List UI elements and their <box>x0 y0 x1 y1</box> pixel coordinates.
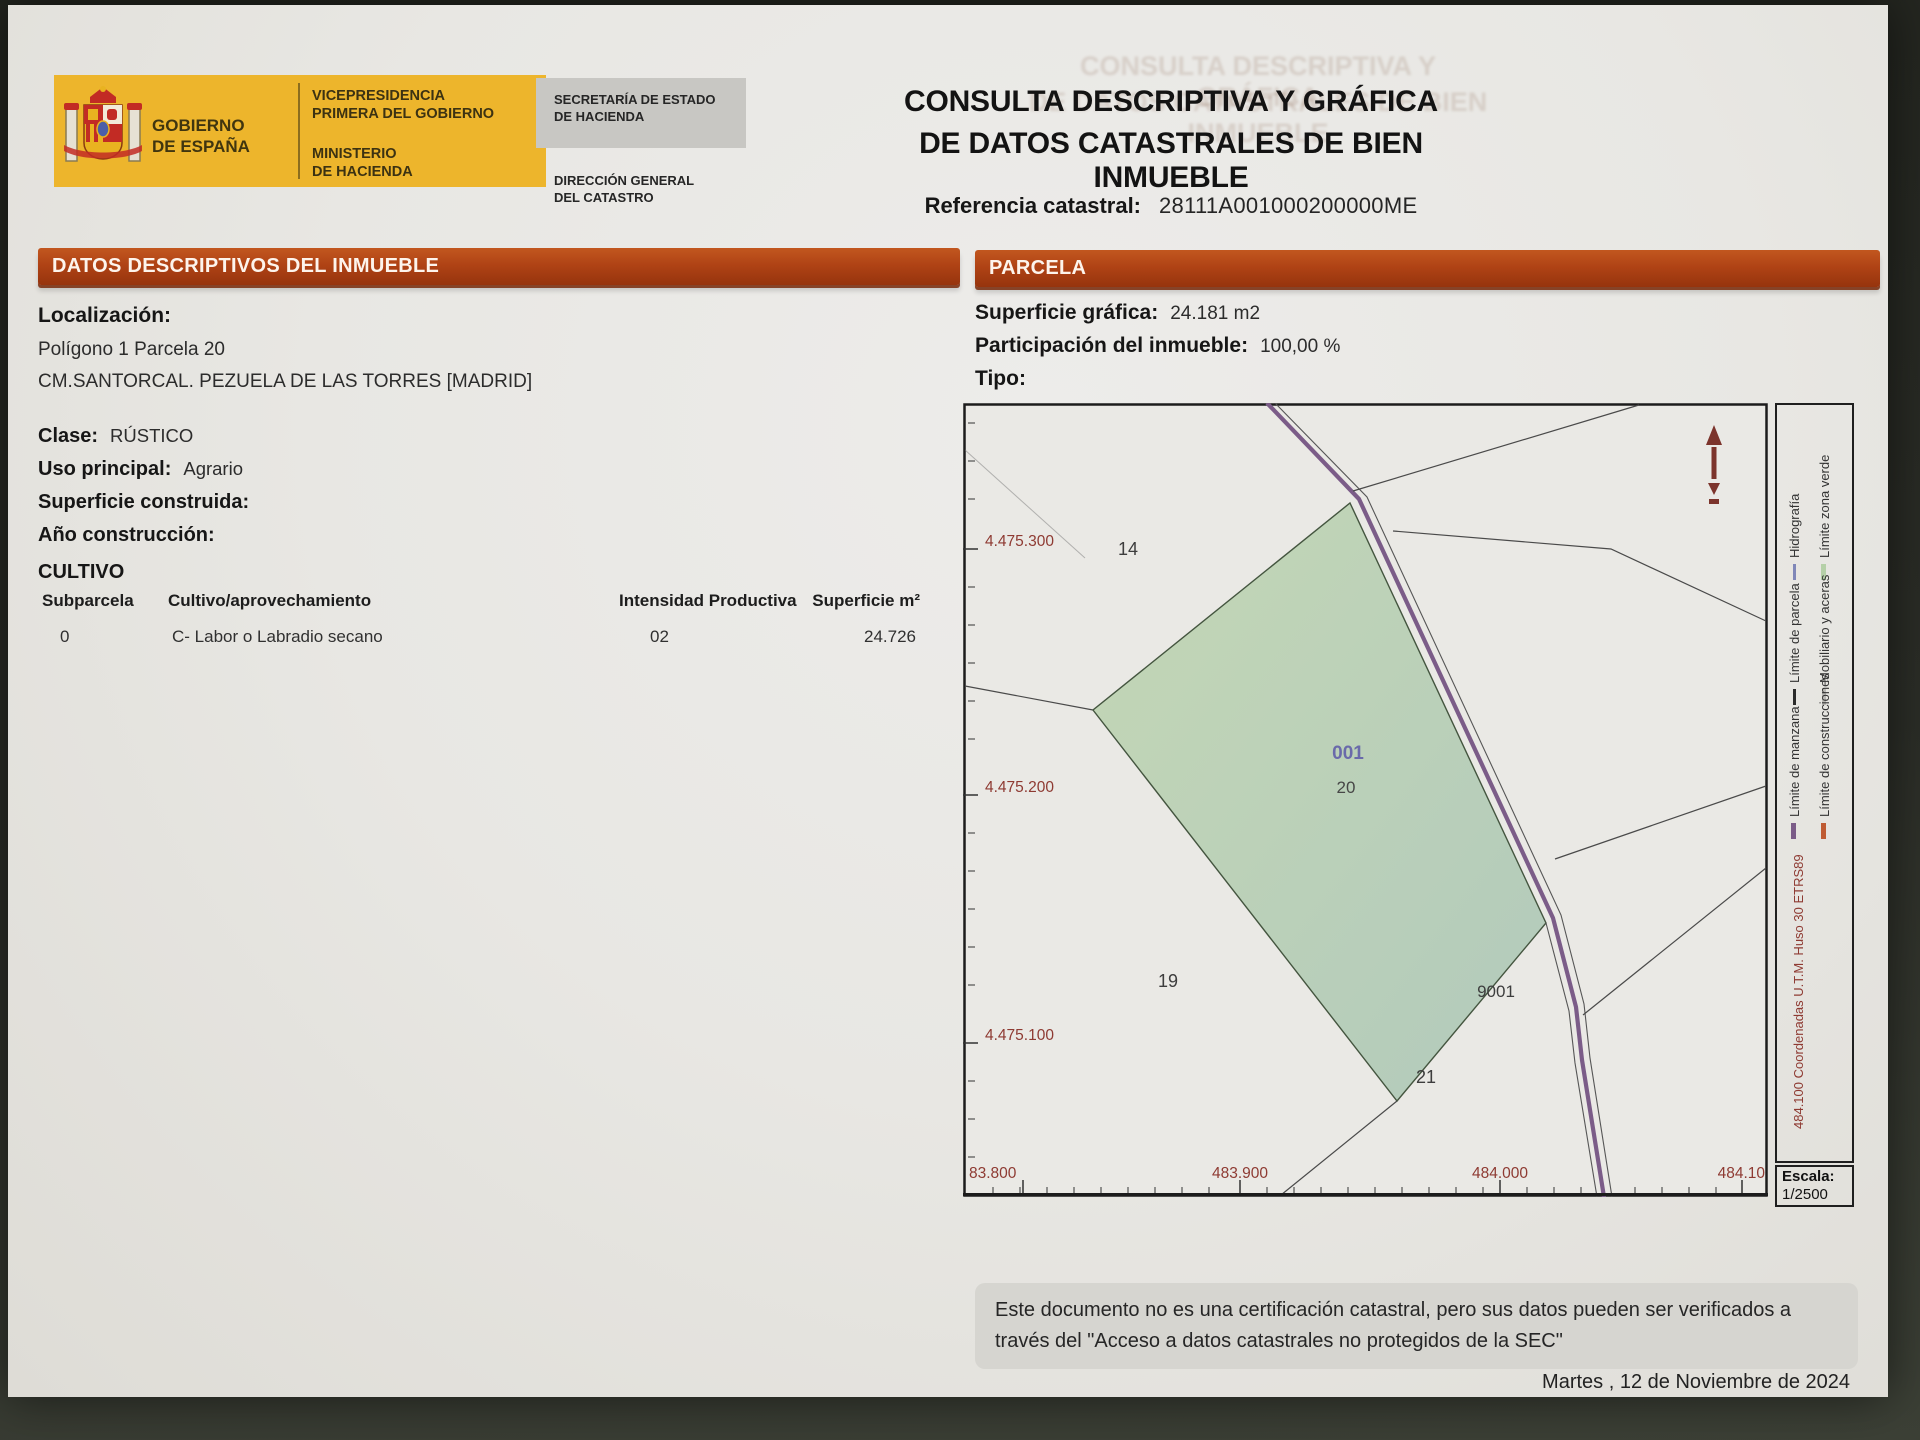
legend-item-limite-construcciones: Límite de construcciones <box>1817 673 1832 839</box>
limite-construcciones-swatch-icon <box>1821 823 1826 839</box>
referencia-catastral-value: 28111A001000200000ME <box>1159 193 1417 219</box>
participacion-row: Participación del inmueble: 100,00 % <box>975 334 1340 358</box>
participacion-value: 100,00 % <box>1260 336 1340 358</box>
legend-coordinate-note: 484.100 Coordenadas U.T.M. Huso 30 ETRS8… <box>1791 854 1806 1129</box>
clase-value: RÚSTICO <box>110 425 193 447</box>
uso-principal-value: Agrario <box>183 458 243 480</box>
legend-item-zona-verde: Límite zona verde <box>1817 455 1832 580</box>
superficie-grafica-value: 24.181 m2 <box>1170 303 1260 325</box>
document-title-line2: DE DATOS CATASTRALES DE BIEN INMUEBLE <box>866 127 1476 195</box>
map-legend: Hidrografía Límite zona verde Límite de … <box>1775 403 1854 1163</box>
secretaria-de-estado-label: SECRETARÍA DE ESTADO DE HACIENDA <box>536 78 746 148</box>
legend-item-limite-parcela: Límite de parcela <box>1787 583 1802 705</box>
localizacion-line2: CM.SANTORCAL. PEZUELA DE LAS TORRES [MAD… <box>38 371 532 393</box>
escala-value: 1/2500 <box>1782 1186 1847 1204</box>
subparcela-001-label: 001 <box>1332 743 1364 764</box>
cultivo-table: Subparcela Cultivo/aprovechamiento Inten… <box>38 591 928 671</box>
superficie-construida-label: Superficie construida: <box>38 491 249 514</box>
x-label-483900: 483.900 <box>1212 1165 1268 1182</box>
document-title-line1: CONSULTA DESCRIPTIVA Y GRÁFICA <box>866 85 1476 119</box>
scale-box: Escala: 1/2500 <box>1775 1165 1854 1207</box>
x-label-483800: 83.800 <box>969 1165 1017 1182</box>
y-label-4475300: 4.475.300 <box>985 533 1054 550</box>
gobierno-de-espana-label: GOBIERNO DE ESPAÑA <box>152 115 250 157</box>
localizacion-label: Localización: <box>38 304 171 328</box>
participacion-label: Participación del inmueble: <box>975 334 1248 358</box>
section-header-parcela: PARCELA <box>975 250 1880 287</box>
parcel-20-label: 20 <box>1337 778 1356 797</box>
cell-superficie: 24.726 <box>864 627 916 647</box>
ministerio-label: MINISTERIO DE HACIENDA <box>312 145 413 181</box>
document-page: GOBIERNO DE ESPAÑA VICEPRESIDENCIA PRIME… <box>8 5 1888 1397</box>
escala-label: Escala: <box>1782 1168 1847 1186</box>
cell-intensidad: 02 <box>650 627 669 647</box>
cell-subparcela: 0 <box>60 627 69 647</box>
superficie-grafica-row: Superficie gráfica: 24.181 m2 <box>975 301 1260 325</box>
clase-row: Clase: RÚSTICO <box>38 425 193 448</box>
col-header-intensidad: Intensidad Productiva <box>619 591 797 611</box>
logo-divider <box>298 83 300 179</box>
y-label-4475100: 4.475.100 <box>985 1027 1054 1044</box>
cadastral-reference-row: Referencia catastral: 28111A001000200000… <box>866 193 1476 219</box>
superficie-grafica-label: Superficie gráfica: <box>975 301 1158 325</box>
legend-item-limite-manzana: Límite de manzana <box>1787 706 1802 839</box>
limite-parcela-swatch-icon <box>1793 689 1796 705</box>
vicepresidencia-label: VICEPRESIDENCIA PRIMERA DEL GOBIERNO <box>312 87 494 123</box>
document-date: Martes , 12 de Noviembre de 2024 <box>1542 1371 1850 1394</box>
cell-cultivo: C- Labor o Labradio secano <box>172 627 383 647</box>
direccion-general-label: DIRECCIÓN GENERAL DEL CATASTRO <box>536 172 746 216</box>
uso-principal-label: Uso principal: <box>38 458 171 481</box>
col-header-cultivo: Cultivo/aprovechamiento <box>168 591 371 611</box>
referencia-catastral-label: Referencia catastral: <box>925 193 1141 219</box>
parcel-14-label: 14 <box>1118 539 1138 559</box>
parcel-9001-label: 9001 <box>1477 982 1515 1001</box>
uso-principal-row: Uso principal: Agrario <box>38 458 243 481</box>
section-header-datos-descriptivos: DATOS DESCRIPTIVOS DEL INMUEBLE <box>38 248 960 285</box>
parcel-21-label: 21 <box>1416 1067 1436 1087</box>
clase-label: Clase: <box>38 425 98 448</box>
x-label-484000: 484.000 <box>1472 1165 1528 1182</box>
cultivo-title: CULTIVO <box>38 561 124 584</box>
tipo-label: Tipo: <box>975 367 1026 391</box>
col-header-superficie: Superficie m² <box>812 591 920 611</box>
localizacion-line1: Polígono 1 Parcela 20 <box>38 339 225 361</box>
x-label-484100: 484.10 <box>1718 1165 1766 1182</box>
limite-manzana-swatch-icon <box>1791 823 1796 839</box>
anio-construccion-label: Año construcción: <box>38 524 215 547</box>
legend-item-hidrografia: Hidrografía <box>1787 494 1802 580</box>
col-header-subparcela: Subparcela <box>42 591 134 611</box>
y-label-4475200: 4.475.200 <box>985 779 1054 796</box>
hidrografia-swatch-icon <box>1793 564 1796 580</box>
cadastral-map: 4.475.300 4.475.200 4.475.100 83.800 483… <box>963 403 1768 1197</box>
spain-coat-of-arms-icon <box>62 83 144 184</box>
disclaimer-box: Este documento no es una certificación c… <box>975 1283 1858 1369</box>
parcel-19-label: 19 <box>1158 971 1178 991</box>
government-logo-block: GOBIERNO DE ESPAÑA VICEPRESIDENCIA PRIME… <box>54 75 546 187</box>
